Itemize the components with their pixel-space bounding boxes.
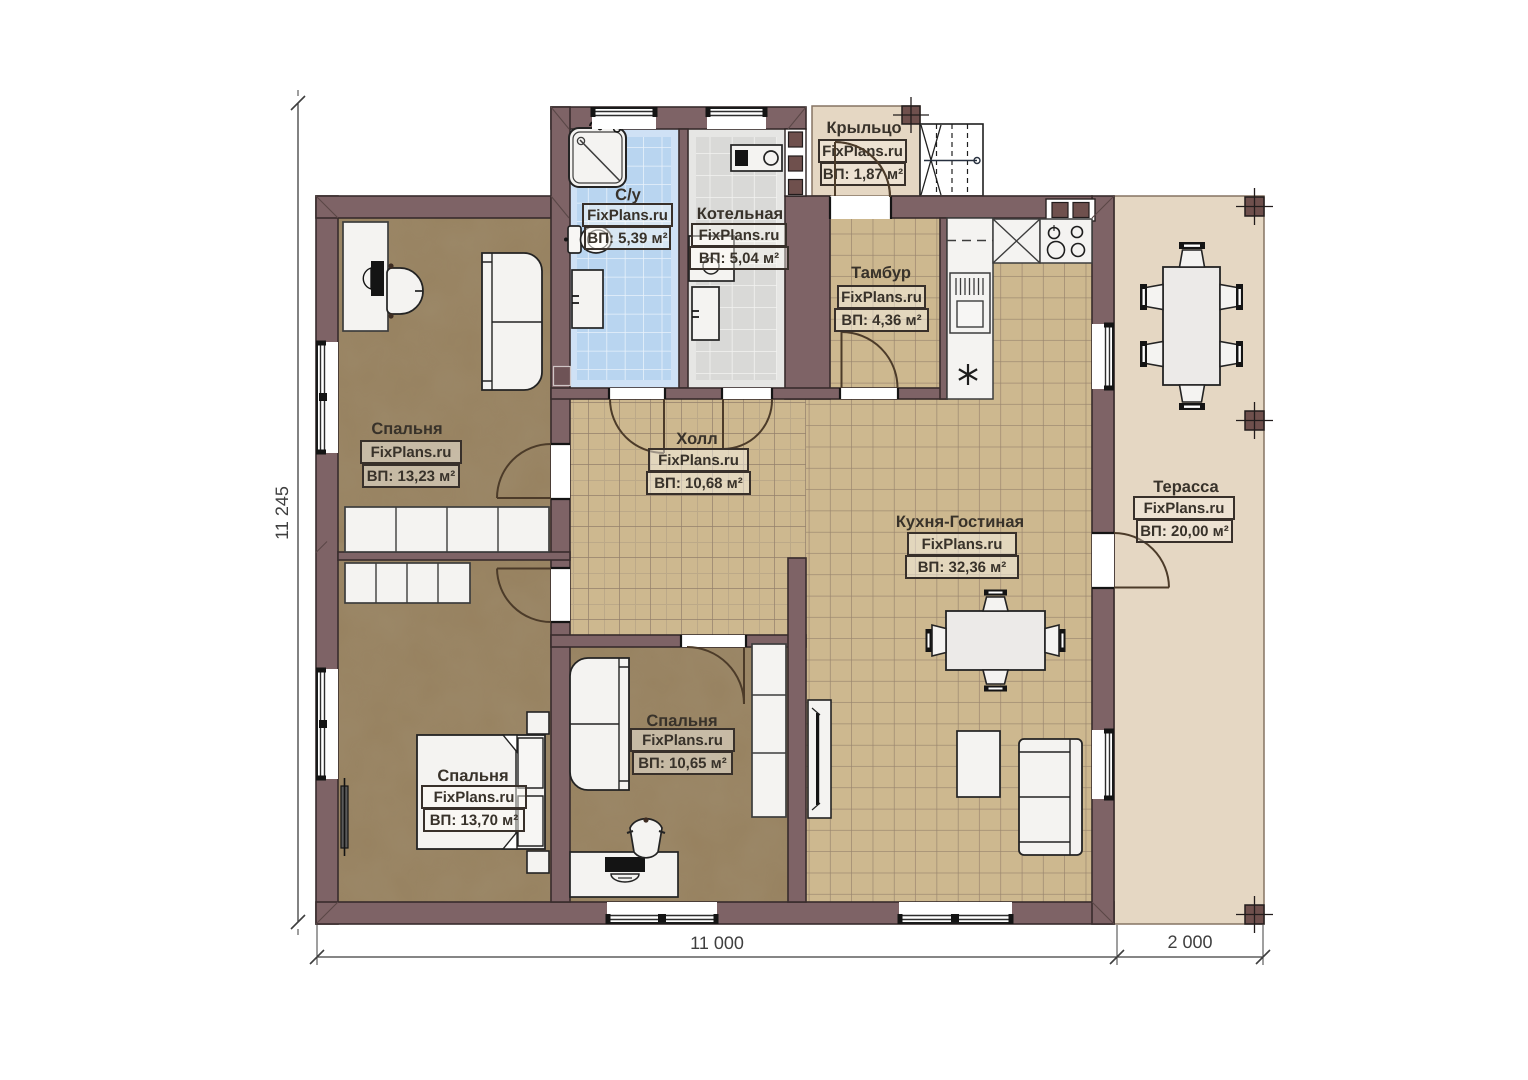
svg-text:Спальня: Спальня	[646, 712, 717, 730]
svg-text:FixPlans.ru: FixPlans.ru	[699, 227, 780, 244]
svg-text:2 000: 2 000	[1167, 932, 1212, 952]
svg-text:ВП: 20,00 м²: ВП: 20,00 м²	[1140, 523, 1229, 540]
svg-text:С/у: С/у	[615, 186, 642, 204]
svg-text:ВП: 13,23 м²: ВП: 13,23 м²	[367, 468, 456, 485]
svg-text:ВП: 10,65 м²: ВП: 10,65 м²	[638, 755, 727, 772]
svg-text:ВП: 5,04 м²: ВП: 5,04 м²	[699, 250, 779, 267]
svg-text:ВП: 5,39 м²: ВП: 5,39 м²	[587, 230, 667, 247]
svg-text:11 000: 11 000	[690, 933, 744, 953]
svg-text:Крыльцо: Крыльцо	[826, 119, 901, 137]
svg-text:Котельная: Котельная	[697, 205, 783, 223]
svg-text:FixPlans.ru: FixPlans.ru	[371, 444, 452, 461]
svg-text:FixPlans.ru: FixPlans.ru	[841, 289, 922, 306]
svg-text:ВП: 32,36 м²: ВП: 32,36 м²	[918, 559, 1007, 576]
svg-text:ВП: 10,68 м²: ВП: 10,68 м²	[654, 475, 743, 492]
svg-text:FixPlans.ru: FixPlans.ru	[1144, 500, 1225, 517]
svg-text:FixPlans.ru: FixPlans.ru	[434, 789, 515, 806]
svg-text:FixPlans.ru: FixPlans.ru	[922, 536, 1003, 553]
svg-text:FixPlans.ru: FixPlans.ru	[642, 732, 723, 749]
svg-text:FixPlans.ru: FixPlans.ru	[587, 207, 668, 224]
svg-text:Спальня: Спальня	[437, 767, 508, 785]
svg-text:FixPlans.ru: FixPlans.ru	[658, 452, 739, 469]
svg-text:11 245: 11 245	[272, 486, 292, 540]
svg-text:ВП: 13,70 м²: ВП: 13,70 м²	[430, 812, 519, 829]
svg-text:Холл: Холл	[676, 430, 717, 448]
svg-text:ВП: 4,36 м²: ВП: 4,36 м²	[841, 312, 921, 329]
svg-text:Терасса: Терасса	[1153, 478, 1219, 496]
svg-text:Кухня-Гостиная: Кухня-Гостиная	[896, 513, 1024, 531]
svg-text:Спальня: Спальня	[371, 420, 442, 438]
svg-text:Тамбур: Тамбур	[851, 264, 911, 282]
